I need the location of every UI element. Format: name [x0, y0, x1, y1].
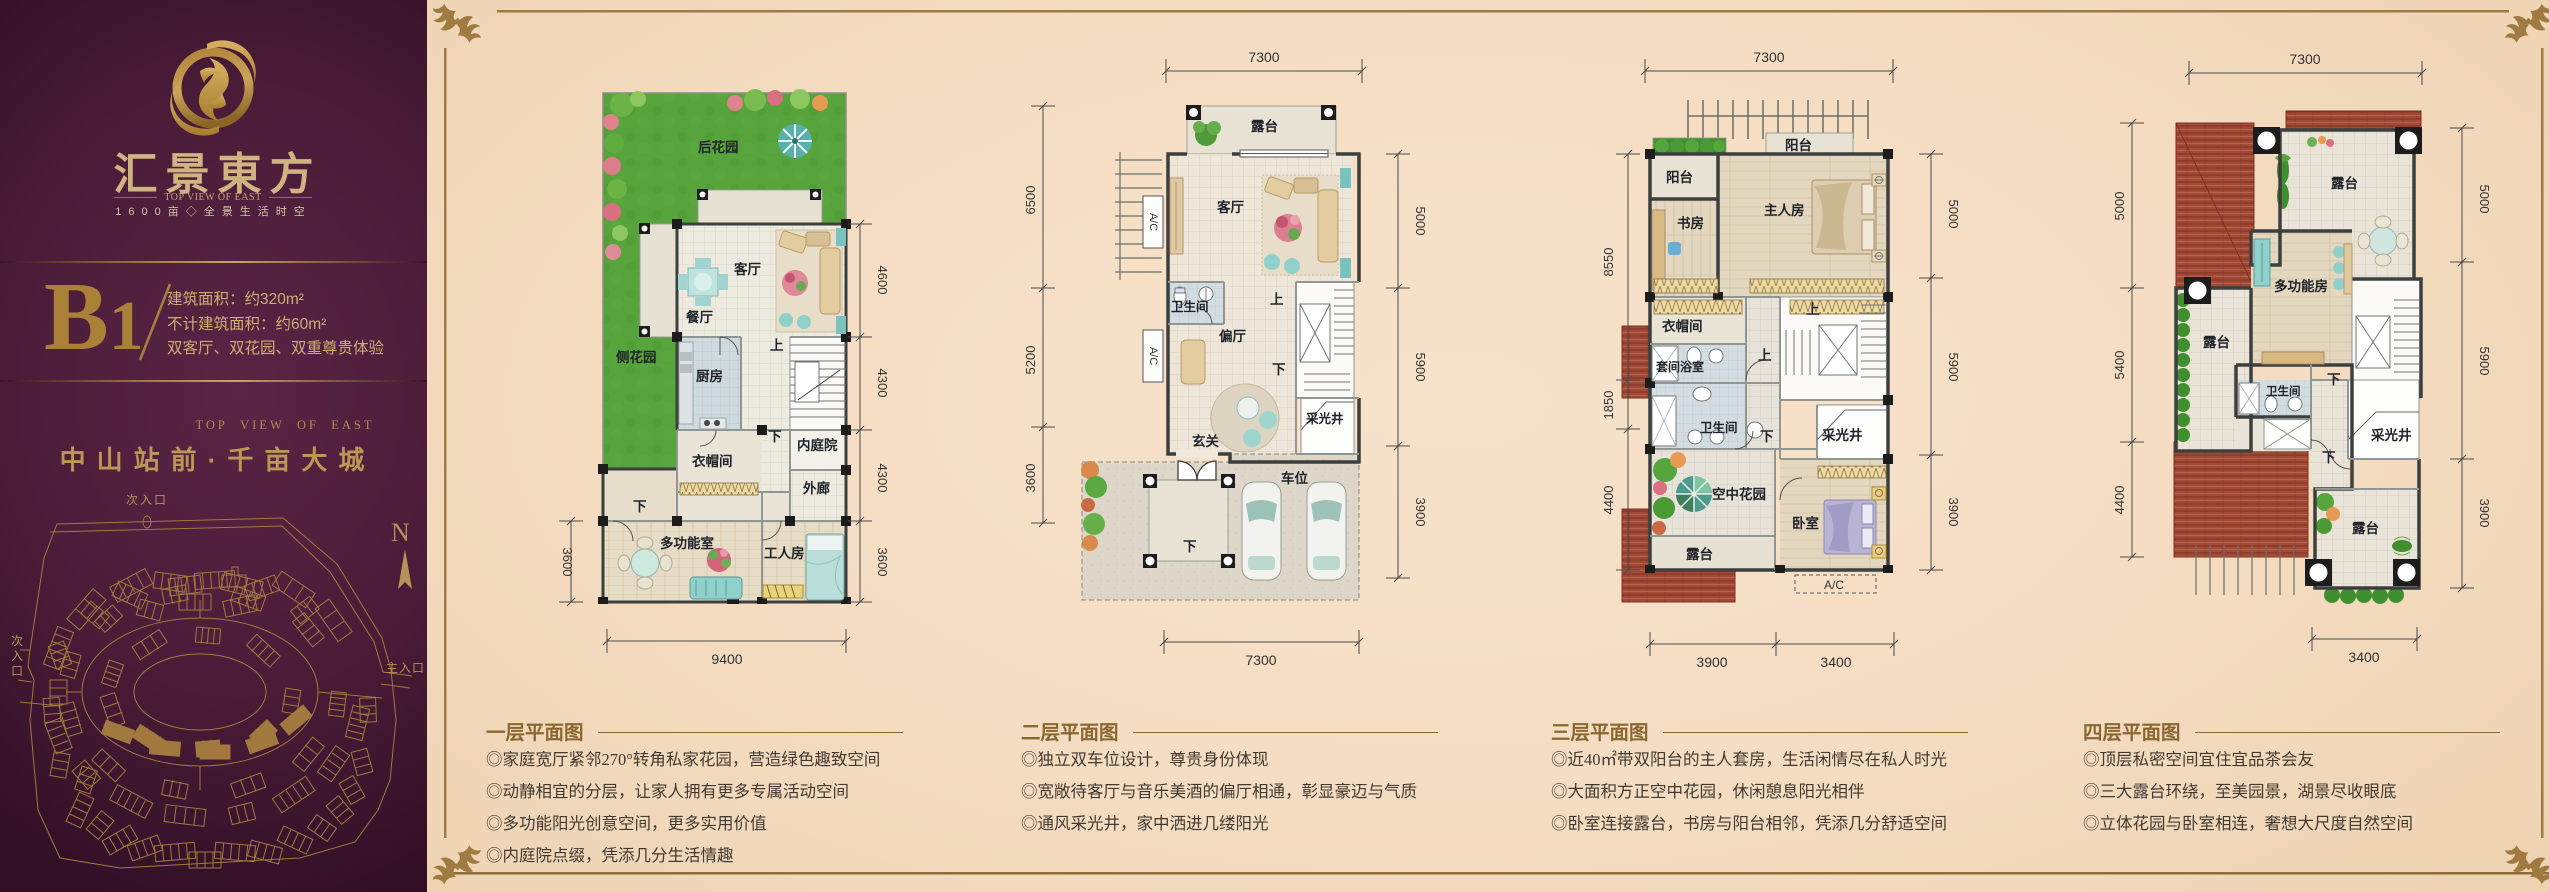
svg-text:露台: 露台	[2203, 334, 2230, 350]
svg-text:A/C: A/C	[1824, 578, 1844, 592]
svg-text:卫生间: 卫生间	[1700, 420, 1738, 435]
svg-text:客厅: 客厅	[1216, 199, 1245, 215]
svg-text:下: 下	[768, 429, 782, 444]
svg-text:空中花园: 空中花园	[1712, 486, 1766, 502]
svg-text:4600: 4600	[875, 266, 890, 295]
svg-text:采光井: 采光井	[1305, 411, 1344, 426]
svg-text:下: 下	[1183, 539, 1197, 554]
svg-text:书房: 书房	[1677, 215, 1704, 231]
svg-text:7300: 7300	[1248, 49, 1279, 65]
svg-text:多功能房: 多功能房	[2274, 278, 2328, 294]
svg-text:多功能室: 多功能室	[660, 535, 714, 551]
svg-text:3900: 3900	[1946, 498, 1961, 527]
svg-text:3600: 3600	[875, 548, 890, 577]
svg-text:1850: 1850	[1601, 391, 1616, 420]
svg-text:3400: 3400	[1820, 654, 1851, 670]
svg-text:5000: 5000	[1413, 207, 1428, 236]
svg-text:露台: 露台	[1686, 546, 1713, 562]
svg-text:阳台: 阳台	[1666, 169, 1693, 185]
svg-text:偏厅: 偏厅	[1219, 328, 1247, 344]
svg-text:卫生间: 卫生间	[2266, 384, 2301, 398]
svg-text:衣帽间: 衣帽间	[692, 453, 733, 469]
svg-text:下: 下	[2322, 450, 2336, 465]
svg-text:套间浴室: 套间浴室	[1655, 359, 1704, 374]
svg-text:3900: 3900	[1413, 498, 1428, 527]
svg-text:4400: 4400	[2112, 486, 2127, 515]
svg-text:4300: 4300	[875, 369, 890, 398]
svg-text:采光井: 采光井	[1822, 427, 1863, 443]
svg-text:5000: 5000	[2112, 192, 2127, 221]
svg-text:采光井: 采光井	[2371, 427, 2412, 443]
svg-text:卧室: 卧室	[1792, 515, 1820, 531]
svg-text:露台: 露台	[1251, 118, 1278, 134]
svg-text:内庭院: 内庭院	[797, 437, 838, 453]
svg-text:上: 上	[1758, 348, 1772, 363]
svg-text:上: 上	[1806, 302, 1820, 317]
svg-text:4400: 4400	[1601, 486, 1616, 515]
svg-text:7300: 7300	[1245, 652, 1276, 668]
svg-text:7300: 7300	[1753, 49, 1784, 65]
svg-text:8550: 8550	[1601, 248, 1616, 277]
svg-text:外廊: 外廊	[803, 480, 831, 496]
svg-text:6500: 6500	[1023, 186, 1038, 215]
svg-text:餐厅: 餐厅	[685, 309, 714, 325]
svg-text:露台: 露台	[2331, 175, 2358, 191]
svg-text:后花园: 后花园	[698, 139, 739, 155]
svg-text:5900: 5900	[1946, 353, 1961, 382]
svg-text:5900: 5900	[2477, 347, 2492, 376]
svg-text:A/C: A/C	[1147, 347, 1159, 365]
svg-text:9400: 9400	[711, 651, 742, 667]
svg-text:3600: 3600	[560, 548, 575, 577]
svg-text:露台: 露台	[2352, 520, 2379, 536]
svg-text:下: 下	[2327, 372, 2341, 387]
svg-text:车位: 车位	[1281, 470, 1309, 486]
svg-text:7300: 7300	[2289, 51, 2320, 67]
svg-text:侧花园: 侧花园	[616, 349, 657, 365]
svg-text:主人房: 主人房	[1764, 202, 1805, 218]
svg-text:客厅: 客厅	[733, 261, 762, 277]
svg-text:3400: 3400	[2348, 649, 2379, 665]
svg-text:卫生间: 卫生间	[1171, 299, 1209, 314]
svg-text:4300: 4300	[875, 464, 890, 493]
svg-text:3600: 3600	[1023, 464, 1038, 493]
svg-text:上: 上	[1270, 292, 1284, 307]
svg-text:5400: 5400	[2112, 351, 2127, 380]
svg-text:上: 上	[770, 338, 784, 353]
svg-text:5200: 5200	[1023, 346, 1038, 375]
svg-text:5000: 5000	[1946, 200, 1961, 229]
svg-text:阳台: 阳台	[1785, 137, 1812, 153]
svg-text:衣帽间: 衣帽间	[1662, 318, 1703, 334]
svg-text:下: 下	[1760, 429, 1774, 444]
svg-text:厨房: 厨房	[696, 368, 723, 384]
svg-text:3900: 3900	[1696, 654, 1727, 670]
svg-text:3900: 3900	[2477, 499, 2492, 528]
svg-text:下: 下	[633, 499, 647, 514]
svg-text:5000: 5000	[2477, 185, 2492, 214]
svg-text:A/C: A/C	[1147, 213, 1159, 231]
svg-text:5900: 5900	[1413, 353, 1428, 382]
svg-text:玄关: 玄关	[1192, 433, 1220, 449]
svg-text:下: 下	[1272, 362, 1286, 377]
svg-text:工人房: 工人房	[764, 545, 805, 561]
